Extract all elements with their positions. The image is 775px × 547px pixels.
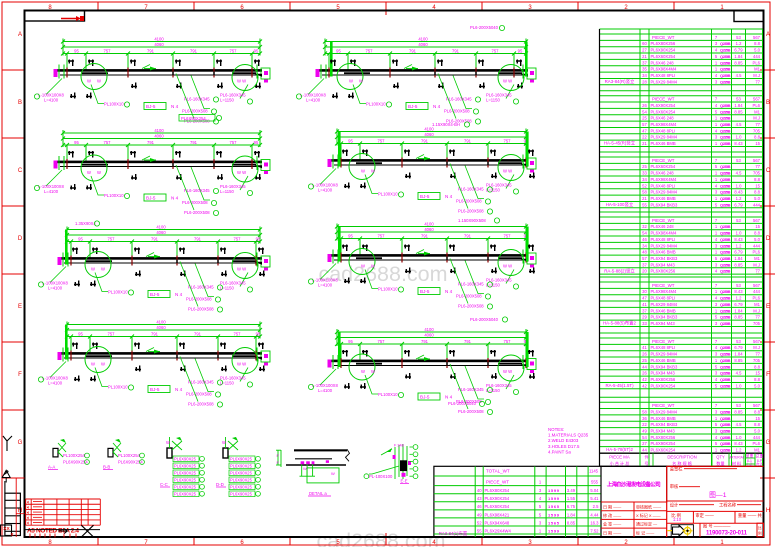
svg-text:PL6X94 BKB3: PL6X94 BKB3 bbox=[651, 202, 678, 207]
svg-text:77: 77 bbox=[755, 79, 760, 84]
svg-text:77: 77 bbox=[755, 352, 760, 357]
svg-text:52: 52 bbox=[477, 520, 482, 525]
svg-text:Q235B: Q235B bbox=[720, 202, 731, 207]
svg-text:55: 55 bbox=[477, 528, 482, 533]
svg-text:PIECE_WT: PIECE_WT bbox=[486, 480, 509, 485]
svg-text:L=1150: L=1150 bbox=[220, 98, 234, 103]
svg-text:PL6X80X256: PL6X80X256 bbox=[651, 41, 676, 46]
svg-text:95: 95 bbox=[254, 49, 259, 54]
svg-text:Q235B: Q235B bbox=[720, 435, 731, 440]
svg-text:PL6X90X254: PL6X90X254 bbox=[181, 116, 206, 121]
svg-text:444: 444 bbox=[753, 289, 761, 294]
svg-text:791: 791 bbox=[452, 49, 460, 54]
svg-text:4100: 4100 bbox=[424, 222, 434, 227]
svg-text:6.79: 6.79 bbox=[734, 202, 743, 207]
svg-text:PL6X98X4M4: PL6X98X4M4 bbox=[651, 231, 678, 236]
svg-text:791: 791 bbox=[194, 237, 202, 242]
svg-text:工程名称: 工程名称 bbox=[719, 502, 737, 509]
svg-text:号: 号 bbox=[644, 460, 648, 466]
svg-text:4100: 4100 bbox=[418, 37, 428, 42]
svg-text:567: 567 bbox=[753, 158, 761, 163]
svg-text:TOTAL_WT: TOTAL_WT bbox=[486, 468, 510, 473]
svg-text:名 称 规 格: 名 称 规 格 bbox=[672, 460, 692, 466]
svg-text:PL6-160X345: PL6-160X345 bbox=[188, 285, 214, 290]
svg-text:6.79: 6.79 bbox=[734, 345, 743, 350]
svg-text:PL6X60X254: PL6X60X254 bbox=[651, 54, 676, 59]
svg-text:E-E: E-E bbox=[401, 479, 408, 484]
svg-text:W: W bbox=[97, 79, 101, 84]
svg-text:PL6X46 BMB: PL6X46 BMB bbox=[651, 416, 676, 421]
svg-text:60: 60 bbox=[642, 41, 647, 46]
svg-text:Q235B: Q235B bbox=[720, 243, 731, 248]
svg-text:PL6X46 BMB: PL6X46 BMB bbox=[651, 358, 676, 363]
svg-text:Q235B: Q235B bbox=[720, 289, 731, 294]
svg-text:PL6: PL6 bbox=[753, 250, 761, 255]
svg-text:53: 53 bbox=[736, 283, 741, 288]
svg-text:W: W bbox=[166, 440, 170, 445]
svg-text:4060: 4060 bbox=[424, 132, 434, 137]
svg-text:W: W bbox=[87, 79, 91, 84]
svg-text:PL6X94 BKB3: PL6X94 BKB3 bbox=[651, 315, 678, 320]
svg-text:NOTES:: NOTES: bbox=[548, 427, 564, 432]
svg-text:F: F bbox=[18, 372, 22, 378]
svg-text:36: 36 bbox=[642, 416, 647, 421]
svg-text:95: 95 bbox=[348, 234, 353, 239]
svg-text:B-B: B-B bbox=[103, 465, 110, 470]
svg-text:757: 757 bbox=[366, 49, 374, 54]
svg-text:5.0: 5.0 bbox=[754, 428, 760, 433]
svg-text:PL6-200X508: PL6-200X508 bbox=[444, 109, 470, 114]
svg-text:567: 567 bbox=[753, 218, 761, 223]
svg-text:8.43: 8.43 bbox=[734, 190, 743, 195]
svg-text:E: E bbox=[766, 304, 770, 310]
svg-text:上海白沙港发电设备公司: 上海白沙港发电设备公司 bbox=[607, 480, 661, 488]
svg-text:PL6X46 BMB: PL6X46 BMB bbox=[651, 250, 676, 255]
svg-text:Q235B: Q235B bbox=[720, 231, 731, 236]
svg-text:PL6-160X345: PL6-160X345 bbox=[446, 97, 472, 102]
svg-text:54: 54 bbox=[642, 435, 647, 440]
svg-text:6.79: 6.79 bbox=[734, 48, 743, 53]
svg-text:PL6X94 BKB3: PL6X94 BKB3 bbox=[651, 422, 678, 427]
svg-text:PL100X254: PL100X254 bbox=[118, 453, 141, 458]
svg-text:Q235B: Q235B bbox=[720, 321, 731, 326]
svg-text:44: 44 bbox=[642, 364, 647, 369]
svg-text:B: B bbox=[18, 100, 22, 106]
svg-text:PIECE_WT: PIECE_WT bbox=[652, 403, 675, 408]
svg-text:RA-5-45(1.5T): RA-5-45(1.5T) bbox=[605, 383, 634, 388]
svg-text:PL6X98X4M4: PL6X98X4M4 bbox=[651, 289, 678, 294]
svg-text:705: 705 bbox=[753, 128, 761, 133]
svg-text:4.5: 4.5 bbox=[736, 171, 742, 176]
svg-text:PL6X29X4W4: PL6X29X4W4 bbox=[485, 528, 512, 533]
svg-text:G: G bbox=[18, 440, 23, 446]
svg-text:PL6X90X25: PL6X90X25 bbox=[230, 464, 253, 469]
svg-text:4.44: 4.44 bbox=[590, 512, 599, 517]
svg-text:PL6-200X508: PL6-200X508 bbox=[458, 409, 484, 414]
svg-text:41: 41 bbox=[642, 302, 647, 307]
svg-text:8.8: 8.8 bbox=[754, 231, 760, 236]
svg-text:4060: 4060 bbox=[424, 227, 434, 232]
svg-text:1599: 1599 bbox=[548, 496, 560, 501]
svg-text:PL6X98X4M4: PL6X98X4M4 bbox=[651, 122, 678, 127]
svg-text:PL6X90X25: PL6X90X25 bbox=[174, 457, 197, 462]
svg-text:XX: XX bbox=[3, 526, 10, 532]
svg-text:95: 95 bbox=[78, 237, 83, 242]
svg-text:21: 21 bbox=[642, 54, 647, 59]
svg-text:W: W bbox=[371, 264, 375, 269]
svg-text:1565: 1565 bbox=[548, 504, 560, 509]
svg-text:47: 47 bbox=[642, 296, 647, 301]
svg-text:8.43: 8.43 bbox=[734, 237, 743, 242]
svg-text:W W: W W bbox=[237, 79, 246, 84]
svg-text:15: 15 bbox=[755, 224, 760, 229]
svg-text:PL6X90X25: PL6X90X25 bbox=[174, 485, 197, 490]
svg-text:5.0: 5.0 bbox=[754, 383, 760, 388]
svg-text:PL6-160X345: PL6-160X345 bbox=[184, 188, 210, 193]
svg-text:4060: 4060 bbox=[154, 134, 164, 139]
svg-text:N 4: N 4 bbox=[445, 194, 453, 199]
svg-text:77: 77 bbox=[755, 122, 760, 127]
svg-text:W: W bbox=[222, 440, 226, 445]
svg-text:49: 49 bbox=[477, 512, 482, 517]
svg-text:PL6X90X25: PL6X90X25 bbox=[174, 478, 197, 483]
svg-text:L=1150: L=1150 bbox=[220, 286, 234, 291]
svg-text:1.84: 1.84 bbox=[567, 512, 576, 517]
svg-text:21: 21 bbox=[642, 196, 647, 201]
svg-text:37: 37 bbox=[642, 308, 647, 313]
svg-text:6.79: 6.79 bbox=[734, 302, 743, 307]
svg-text:PL6X46 248: PL6X46 248 bbox=[651, 60, 675, 65]
svg-text:46: 46 bbox=[642, 237, 647, 242]
svg-text:数量: 数量 bbox=[716, 460, 724, 466]
svg-text:3.49: 3.49 bbox=[567, 488, 576, 493]
svg-text:53: 53 bbox=[736, 339, 741, 344]
svg-text:BJ-5: BJ-5 bbox=[146, 104, 156, 109]
svg-text:1.2: 1.2 bbox=[736, 243, 742, 248]
svg-text:28: 28 bbox=[642, 79, 647, 84]
svg-text:W: W bbox=[97, 170, 101, 175]
svg-text:Q235B: Q235B bbox=[720, 448, 731, 453]
svg-text:PL6-160X345: PL6-160X345 bbox=[458, 187, 484, 192]
svg-text:46: 46 bbox=[477, 504, 482, 509]
svg-text:HA-5-45(R)竖立: HA-5-45(R)竖立 bbox=[604, 140, 636, 146]
svg-text:PL6X90X25: PL6X90X25 bbox=[230, 492, 253, 497]
svg-text:757: 757 bbox=[504, 139, 512, 144]
svg-text:DESCRIPTION: DESCRIPTION bbox=[667, 455, 696, 460]
svg-text:PL6-200X508: PL6-200X508 bbox=[456, 294, 482, 299]
svg-text:D-D: D-D bbox=[216, 482, 224, 487]
svg-text:F 348: F 348 bbox=[394, 444, 404, 448]
svg-text:Q235B: Q235B bbox=[720, 190, 731, 195]
svg-text:M.J: M.J bbox=[753, 116, 760, 121]
svg-text:N 4: N 4 bbox=[171, 104, 179, 109]
svg-text:C: C bbox=[766, 168, 771, 174]
svg-text:95: 95 bbox=[74, 49, 79, 54]
svg-text:1599: 1599 bbox=[548, 512, 560, 517]
svg-text:W W: W W bbox=[237, 170, 246, 175]
svg-text:W W: W W bbox=[237, 362, 246, 367]
svg-text:Q235B: Q235B bbox=[720, 262, 731, 267]
svg-text:Q235B: Q235B bbox=[720, 428, 731, 433]
svg-text:L=4100: L=4100 bbox=[318, 188, 333, 193]
svg-text:37: 37 bbox=[642, 60, 647, 65]
svg-text:PL100X10: PL100X10 bbox=[104, 193, 124, 198]
svg-text:PL6-200X508: PL6-200X508 bbox=[186, 297, 212, 302]
svg-text:日 期 ——: 日 期 —— bbox=[603, 529, 621, 535]
svg-text:PL6X48 8PLI: PL6X48 8PLI bbox=[651, 73, 676, 78]
svg-text:N 4: N 4 bbox=[445, 289, 453, 294]
svg-text:32: 32 bbox=[642, 224, 647, 229]
svg-text:4100: 4100 bbox=[156, 320, 166, 325]
svg-text:1.2: 1.2 bbox=[736, 448, 742, 453]
svg-text:PL6X98X421: PL6X98X421 bbox=[485, 512, 510, 517]
svg-text:27: 27 bbox=[642, 441, 647, 446]
svg-text:PL6X46 BMB: PL6X46 BMB bbox=[651, 308, 676, 313]
svg-text:25: 25 bbox=[642, 358, 647, 363]
svg-text:M.J: M.J bbox=[753, 73, 760, 78]
svg-text:791: 791 bbox=[421, 139, 429, 144]
svg-text:C: C bbox=[18, 168, 23, 174]
svg-text:8.43: 8.43 bbox=[734, 441, 743, 446]
svg-text:PL6X48 8PLI: PL6X48 8PLI bbox=[651, 183, 676, 188]
svg-text:PL100X254: PL100X254 bbox=[63, 453, 86, 458]
svg-text:4060: 4060 bbox=[424, 333, 434, 338]
svg-text:W: W bbox=[331, 471, 335, 476]
svg-text:95: 95 bbox=[78, 332, 83, 337]
svg-text:4100: 4100 bbox=[156, 225, 166, 230]
svg-text:PL6X29 84M4: PL6X29 84M4 bbox=[651, 135, 678, 140]
svg-text:54: 54 bbox=[642, 231, 647, 236]
svg-text:A: A bbox=[766, 32, 770, 38]
svg-text:PL100X10: PL100X10 bbox=[378, 392, 398, 397]
svg-text:8.85: 8.85 bbox=[734, 109, 743, 114]
svg-text:PL6-200X508: PL6-200X508 bbox=[184, 210, 210, 215]
svg-text:PL6-200X5040: PL6-200X5040 bbox=[470, 317, 499, 322]
svg-text:PL6X46 BMB: PL6X46 BMB bbox=[651, 141, 676, 146]
svg-text:M1: M1 bbox=[754, 256, 760, 261]
svg-text:PL6X94 M43: PL6X94 M43 bbox=[651, 321, 676, 326]
svg-text:W: W bbox=[101, 267, 105, 272]
svg-text:40: 40 bbox=[477, 488, 482, 493]
svg-text:PL6-160X345: PL6-160X345 bbox=[188, 380, 214, 385]
svg-text:M1: M1 bbox=[754, 302, 760, 307]
svg-text:1.150X90X508: 1.150X90X508 bbox=[458, 218, 486, 223]
svg-text:Q235B: Q235B bbox=[720, 358, 731, 363]
svg-text:L=1150: L=1150 bbox=[220, 381, 234, 386]
svg-text:例: 例 bbox=[758, 531, 762, 536]
svg-text:N 4: N 4 bbox=[175, 292, 183, 297]
svg-text:Q235B: Q235B bbox=[720, 250, 731, 255]
svg-text:Q235B: Q235B bbox=[720, 164, 731, 169]
svg-text:58: 58 bbox=[642, 190, 647, 195]
svg-text:PL6-200X508: PL6-200X508 bbox=[182, 109, 208, 114]
svg-text:4.5: 4.5 bbox=[736, 371, 742, 376]
svg-text:444: 444 bbox=[753, 202, 761, 207]
svg-text:W: W bbox=[87, 170, 91, 175]
svg-text:PL6X80X256: PL6X80X256 bbox=[651, 269, 676, 274]
svg-text:Q235B: Q235B bbox=[720, 116, 731, 121]
svg-text:22: 22 bbox=[642, 422, 647, 427]
svg-text:37: 37 bbox=[642, 262, 647, 267]
svg-text:44: 44 bbox=[642, 448, 647, 453]
svg-text:PL6X94 M43: PL6X94 M43 bbox=[651, 371, 676, 376]
svg-text:Q235B: Q235B bbox=[720, 196, 731, 201]
svg-text:2.WELD E4303: 2.WELD E4303 bbox=[548, 438, 579, 443]
svg-text:8.43: 8.43 bbox=[734, 141, 743, 146]
svg-text:W W: W W bbox=[503, 369, 512, 374]
svg-text:4060: 4060 bbox=[156, 230, 166, 235]
svg-text:Q235B: Q235B bbox=[720, 377, 731, 382]
svg-text:Q235B: Q235B bbox=[720, 269, 731, 274]
svg-text:D: D bbox=[18, 236, 23, 242]
svg-text:PL6X29 84M4: PL6X29 84M4 bbox=[651, 79, 678, 84]
svg-text:53: 53 bbox=[736, 218, 741, 223]
svg-text:F: F bbox=[766, 372, 770, 378]
svg-text:W W: W W bbox=[237, 267, 246, 272]
svg-text:2.5: 2.5 bbox=[593, 504, 599, 509]
svg-text:PL6-200X508: PL6-200X508 bbox=[458, 304, 484, 309]
svg-text:审核: 审核 bbox=[670, 483, 679, 490]
svg-text:4060: 4060 bbox=[418, 42, 428, 47]
svg-text:HA-5-78(5T)2: HA-5-78(5T)2 bbox=[606, 447, 633, 452]
svg-text:PIECE_WT: PIECE_WT bbox=[652, 35, 675, 40]
svg-text:27: 27 bbox=[642, 48, 647, 53]
svg-text:小 合 计 总: 小 合 计 总 bbox=[610, 460, 630, 466]
svg-text:E: E bbox=[18, 304, 22, 310]
svg-text:48: 48 bbox=[642, 250, 647, 255]
svg-text:705: 705 bbox=[753, 358, 761, 363]
svg-text:W: W bbox=[361, 369, 365, 374]
svg-text:PL6: PL6 bbox=[753, 103, 761, 108]
svg-text:95: 95 bbox=[74, 140, 79, 145]
svg-text:15: 15 bbox=[755, 183, 760, 188]
svg-text:Q235B: Q235B bbox=[720, 103, 731, 108]
svg-text:HA-5-88(5)布置2: HA-5-88(5)布置2 bbox=[603, 320, 636, 327]
svg-text:95: 95 bbox=[256, 237, 261, 242]
svg-text:8.85: 8.85 bbox=[734, 315, 743, 320]
svg-text:Q235B: Q235B bbox=[720, 302, 731, 307]
svg-text:审定 ——: 审定 —— bbox=[695, 512, 714, 519]
svg-text:L=1150: L=1150 bbox=[220, 189, 234, 194]
svg-text:BJ-5: BJ-5 bbox=[408, 104, 418, 109]
svg-text:PL6X98X4M4: PL6X98X4M4 bbox=[651, 177, 678, 182]
svg-text:757: 757 bbox=[230, 49, 238, 54]
svg-text:PL6X90X254: PL6X90X254 bbox=[485, 496, 510, 501]
svg-text:791: 791 bbox=[151, 332, 159, 337]
svg-text:42: 42 bbox=[642, 377, 647, 382]
svg-text:PL6X29 84M4: PL6X29 84M4 bbox=[651, 190, 678, 195]
svg-text:Q235B: Q235B bbox=[720, 422, 731, 427]
svg-text:M1: M1 bbox=[754, 67, 760, 72]
svg-text:Q235B: Q235B bbox=[720, 41, 731, 46]
svg-text:8.8: 8.8 bbox=[754, 190, 760, 195]
svg-text:54: 54 bbox=[642, 109, 647, 114]
svg-text:757: 757 bbox=[504, 339, 512, 344]
svg-text:567: 567 bbox=[753, 283, 761, 288]
svg-text:PL6X60X254: PL6X60X254 bbox=[651, 109, 676, 114]
svg-text:757: 757 bbox=[104, 49, 112, 54]
svg-text:BJ-5: BJ-5 bbox=[150, 387, 160, 392]
svg-text:PL6-200X508: PL6-200X508 bbox=[456, 199, 482, 204]
svg-text:8.85: 8.85 bbox=[734, 60, 743, 65]
svg-text:8.8: 8.8 bbox=[754, 377, 760, 382]
svg-text:B: B bbox=[766, 100, 770, 106]
svg-text:A-A: A-A bbox=[48, 465, 55, 470]
svg-text:W: W bbox=[303, 466, 307, 471]
svg-text:791: 791 bbox=[190, 49, 198, 54]
svg-text:77: 77 bbox=[755, 269, 760, 274]
svg-text:26: 26 bbox=[642, 103, 647, 108]
svg-text:L=1150: L=1150 bbox=[486, 188, 500, 193]
svg-text:15: 15 bbox=[755, 416, 760, 421]
svg-text:总重: 总重 bbox=[756, 454, 764, 459]
svg-text:52: 52 bbox=[642, 183, 647, 188]
svg-text:PL6X90X25: PL6X90X25 bbox=[230, 485, 253, 490]
svg-text:757: 757 bbox=[234, 332, 242, 337]
svg-text:42: 42 bbox=[642, 383, 647, 388]
svg-text:材 料: 材 料 bbox=[732, 460, 741, 466]
svg-text:34: 34 bbox=[642, 243, 647, 248]
svg-text:PL100X10: PL100X10 bbox=[108, 290, 128, 295]
svg-text:G: G bbox=[766, 440, 771, 446]
svg-text:444: 444 bbox=[753, 54, 761, 59]
svg-text:W: W bbox=[91, 362, 95, 367]
svg-text:重量 —— 共: 重量 —— 共 bbox=[738, 512, 763, 519]
svg-text:W: W bbox=[371, 369, 375, 374]
svg-text:757: 757 bbox=[378, 234, 386, 239]
svg-text:cad2688.com: cad2688.com bbox=[318, 262, 447, 286]
svg-text:L=4100: L=4100 bbox=[318, 283, 333, 288]
svg-text:705: 705 bbox=[753, 171, 761, 176]
svg-text:47: 47 bbox=[642, 128, 647, 133]
svg-text:20: 20 bbox=[642, 269, 647, 274]
svg-text:PL6X60X254: PL6X60X254 bbox=[485, 504, 510, 509]
svg-text:791: 791 bbox=[421, 234, 429, 239]
svg-text:PL6X90X254: PL6X90X254 bbox=[651, 103, 676, 108]
svg-text:PL6-200X5040: PL6-200X5040 bbox=[470, 25, 499, 30]
svg-text:Q235B: Q235B bbox=[720, 296, 731, 301]
svg-text:Q235B: Q235B bbox=[720, 135, 731, 140]
svg-text:PL6X29 84M4: PL6X29 84M4 bbox=[651, 302, 678, 307]
svg-text:26: 26 bbox=[642, 352, 647, 357]
svg-text:757: 757 bbox=[492, 49, 500, 54]
svg-text:35: 35 bbox=[642, 67, 647, 72]
svg-text:A5 NOTED BI.A 2.4: A5 NOTED BI.A 2.4 bbox=[27, 528, 79, 535]
svg-text:PL6X90X254: PL6X90X254 bbox=[651, 48, 676, 53]
svg-text:W W: W W bbox=[503, 264, 512, 269]
svg-text:791: 791 bbox=[421, 339, 429, 344]
svg-text:PL6X29 84M4: PL6X29 84M4 bbox=[651, 352, 678, 357]
svg-text:1.84: 1.84 bbox=[734, 103, 743, 108]
svg-text:Q235B: Q235B bbox=[720, 79, 731, 84]
svg-text:PL6-160X345: PL6-160X345 bbox=[184, 97, 210, 102]
svg-text:设计: 设计 bbox=[670, 502, 679, 509]
svg-text:Q235B: Q235B bbox=[720, 315, 731, 320]
svg-text:1:10: 1:10 bbox=[673, 517, 682, 522]
svg-text:PL6-200X508: PL6-200X508 bbox=[182, 200, 208, 205]
svg-text:Q235B: Q235B bbox=[720, 183, 731, 188]
svg-text:M.J: M.J bbox=[753, 308, 760, 313]
svg-text:Q235B: Q235B bbox=[720, 122, 731, 127]
svg-text:757: 757 bbox=[104, 140, 112, 145]
svg-text:8.8: 8.8 bbox=[754, 409, 760, 414]
svg-text:PL6X48 8PLI: PL6X48 8PLI bbox=[651, 345, 676, 350]
svg-text:L=4100: L=4100 bbox=[44, 98, 59, 103]
svg-text:1.0: 1.0 bbox=[736, 435, 742, 440]
svg-text:D: D bbox=[766, 236, 771, 242]
svg-text:PL100X10: PL100X10 bbox=[366, 102, 386, 107]
svg-text:8.85: 8.85 bbox=[734, 262, 743, 267]
